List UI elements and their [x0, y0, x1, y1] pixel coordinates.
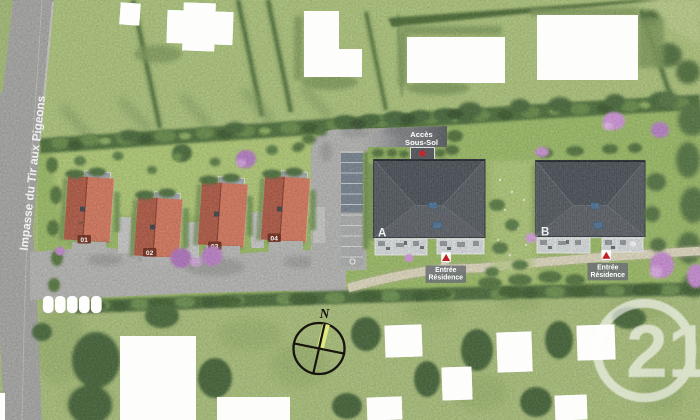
svg-text:Entrée: Entrée: [435, 267, 457, 274]
svg-text:Résidence: Résidence: [591, 272, 626, 279]
svg-text:21: 21: [626, 309, 700, 393]
svg-text:Entrée: Entrée: [597, 265, 619, 272]
svg-text:Sous-Sol: Sous-Sol: [405, 138, 438, 147]
svg-text:Résidence: Résidence: [429, 275, 464, 282]
svg-text:N: N: [319, 306, 331, 321]
